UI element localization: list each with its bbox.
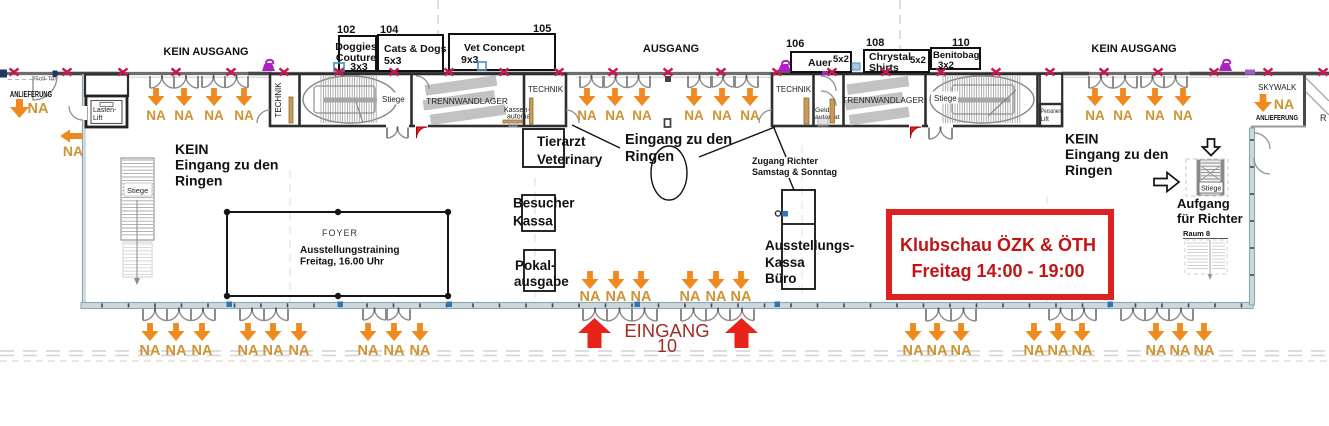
svg-text:automat: automat bbox=[815, 114, 840, 121]
svg-text:3x3: 3x3 bbox=[350, 61, 368, 73]
svg-text:Roll-Tor: Roll-Tor bbox=[34, 76, 57, 83]
svg-text:Stiege: Stiege bbox=[1201, 184, 1221, 193]
svg-text:Cats & Dogs: Cats & Dogs bbox=[384, 43, 447, 55]
svg-text:Klubschau ÖZK & ÖTH: Klubschau ÖZK & ÖTH bbox=[900, 235, 1096, 255]
svg-text:KEIN AUSGANG: KEIN AUSGANG bbox=[163, 46, 248, 58]
svg-text:NA: NA bbox=[410, 343, 431, 359]
svg-text:Pokal-: Pokal- bbox=[515, 258, 556, 273]
svg-text:5x2: 5x2 bbox=[833, 54, 849, 65]
svg-text:Zugang Richter: Zugang Richter bbox=[752, 156, 818, 166]
svg-text:ausgabe: ausgabe bbox=[514, 274, 569, 289]
svg-text:TECHNIK: TECHNIK bbox=[776, 85, 812, 94]
svg-text:Freitag, 16.00 Uhr: Freitag, 16.00 Uhr bbox=[300, 257, 384, 268]
svg-text:Eingang zu den: Eingang zu den bbox=[1065, 146, 1168, 162]
svg-text:Stiege: Stiege bbox=[382, 95, 405, 104]
svg-text:AUSGANG: AUSGANG bbox=[643, 43, 699, 55]
svg-text:NA: NA bbox=[234, 108, 254, 123]
svg-text:Tierarzt: Tierarzt bbox=[537, 134, 586, 149]
svg-text:NA: NA bbox=[140, 343, 161, 359]
svg-text:NA: NA bbox=[1072, 343, 1093, 359]
svg-text:Kassa: Kassa bbox=[513, 214, 553, 229]
svg-text:SKYWALK: SKYWALK bbox=[1258, 83, 1297, 92]
svg-text:NA: NA bbox=[903, 343, 924, 359]
svg-text:Ausstellungstraining: Ausstellungstraining bbox=[300, 245, 399, 256]
svg-text:NA: NA bbox=[63, 143, 83, 159]
svg-text:Aufgang: Aufgang bbox=[1177, 196, 1230, 211]
svg-text:NA: NA bbox=[712, 108, 732, 123]
svg-text:automat: automat bbox=[507, 114, 532, 121]
svg-text:NA: NA bbox=[631, 289, 652, 305]
svg-text:Kassa: Kassa bbox=[765, 255, 805, 270]
svg-text:108: 108 bbox=[866, 37, 884, 49]
svg-text:FOYER: FOYER bbox=[322, 228, 358, 238]
svg-text:TRENNWANDLAGER: TRENNWANDLAGER bbox=[842, 95, 924, 105]
svg-text:NA: NA bbox=[1048, 343, 1069, 359]
svg-text:Besucher: Besucher bbox=[513, 196, 575, 211]
svg-text:Ausstellungs-: Ausstellungs- bbox=[765, 238, 854, 253]
svg-text:9x3: 9x3 bbox=[461, 54, 479, 66]
svg-text:R: R bbox=[1320, 113, 1327, 123]
svg-text:Eingang zu den: Eingang zu den bbox=[175, 157, 278, 173]
svg-text:Ringen: Ringen bbox=[625, 149, 674, 165]
svg-text:NA: NA bbox=[238, 343, 259, 359]
svg-text:NA: NA bbox=[358, 343, 379, 359]
svg-text:ANLIEFERUNG: ANLIEFERUNG bbox=[10, 90, 52, 99]
svg-text:NA: NA bbox=[1173, 108, 1193, 123]
svg-text:NA: NA bbox=[684, 108, 704, 123]
svg-text:Büro: Büro bbox=[765, 271, 797, 286]
svg-text:NA: NA bbox=[632, 108, 652, 123]
svg-text:NA: NA bbox=[166, 343, 187, 359]
svg-text:NA: NA bbox=[1024, 343, 1045, 359]
svg-text:TECHNIK: TECHNIK bbox=[274, 82, 283, 118]
svg-text:NA: NA bbox=[1145, 108, 1165, 123]
svg-text:NA: NA bbox=[1170, 343, 1191, 359]
svg-text:Auer: Auer bbox=[808, 57, 832, 69]
svg-text:NA: NA bbox=[731, 289, 752, 305]
svg-text:Raum 8: Raum 8 bbox=[1183, 229, 1210, 238]
svg-text:NA: NA bbox=[577, 108, 597, 123]
svg-text:NA: NA bbox=[606, 289, 627, 305]
svg-text:NA: NA bbox=[289, 343, 310, 359]
svg-text:NA: NA bbox=[1274, 96, 1294, 112]
svg-text:NA: NA bbox=[204, 108, 224, 123]
svg-text:NA: NA bbox=[951, 343, 972, 359]
svg-text:Lift: Lift bbox=[1041, 116, 1050, 123]
svg-text:Stiege: Stiege bbox=[127, 186, 148, 195]
svg-text:Lift: Lift bbox=[93, 115, 102, 122]
svg-text:Lasten-: Lasten- bbox=[93, 107, 117, 114]
svg-text:Stiege: Stiege bbox=[934, 94, 957, 103]
svg-text:NA: NA bbox=[1085, 108, 1105, 123]
svg-text:Samstag & Sonntag: Samstag & Sonntag bbox=[752, 167, 837, 177]
svg-text:KEIN: KEIN bbox=[1065, 131, 1098, 147]
svg-text:NA: NA bbox=[706, 289, 727, 305]
svg-text:Vet Concept: Vet Concept bbox=[464, 42, 525, 54]
svg-text:NA: NA bbox=[1146, 343, 1167, 359]
svg-text:5x2: 5x2 bbox=[910, 55, 926, 66]
svg-text:TRENNWANDLAGER: TRENNWANDLAGER bbox=[426, 96, 508, 106]
svg-text:NA: NA bbox=[1113, 108, 1133, 123]
svg-text:Ringen: Ringen bbox=[175, 173, 222, 189]
svg-text:NA: NA bbox=[192, 343, 213, 359]
svg-text:für Richter: für Richter bbox=[1177, 211, 1243, 226]
svg-text:5x3: 5x3 bbox=[384, 55, 402, 67]
svg-text:ANLIEFERUNG: ANLIEFERUNG bbox=[1256, 113, 1298, 122]
svg-text:106: 106 bbox=[786, 38, 804, 50]
svg-text:10: 10 bbox=[657, 336, 677, 356]
svg-text:NA: NA bbox=[384, 343, 405, 359]
svg-text:NA: NA bbox=[174, 108, 194, 123]
svg-text:NA: NA bbox=[580, 289, 601, 305]
svg-text:NA: NA bbox=[927, 343, 948, 359]
svg-text:Geld-: Geld- bbox=[815, 107, 832, 114]
svg-text:Eingang zu den: Eingang zu den bbox=[625, 132, 732, 148]
svg-text:Personen: Personen bbox=[1041, 108, 1061, 115]
svg-text:Veterinary: Veterinary bbox=[537, 152, 603, 167]
svg-text:102: 102 bbox=[337, 24, 355, 36]
svg-text:NA: NA bbox=[680, 289, 701, 305]
svg-text:Ringen: Ringen bbox=[1065, 162, 1112, 178]
svg-text:NA: NA bbox=[146, 108, 166, 123]
svg-text:NA: NA bbox=[740, 108, 760, 123]
svg-text:TECHNIK: TECHNIK bbox=[528, 85, 564, 94]
svg-text:KEIN AUSGANG: KEIN AUSGANG bbox=[1091, 43, 1176, 55]
svg-text:NA: NA bbox=[263, 343, 284, 359]
svg-text:NA: NA bbox=[1194, 343, 1215, 359]
svg-text:NA: NA bbox=[28, 101, 49, 117]
svg-text:Freitag 14:00 - 19:00: Freitag 14:00 - 19:00 bbox=[911, 261, 1084, 281]
svg-text:KEIN: KEIN bbox=[175, 141, 208, 157]
svg-text:NA: NA bbox=[605, 108, 625, 123]
